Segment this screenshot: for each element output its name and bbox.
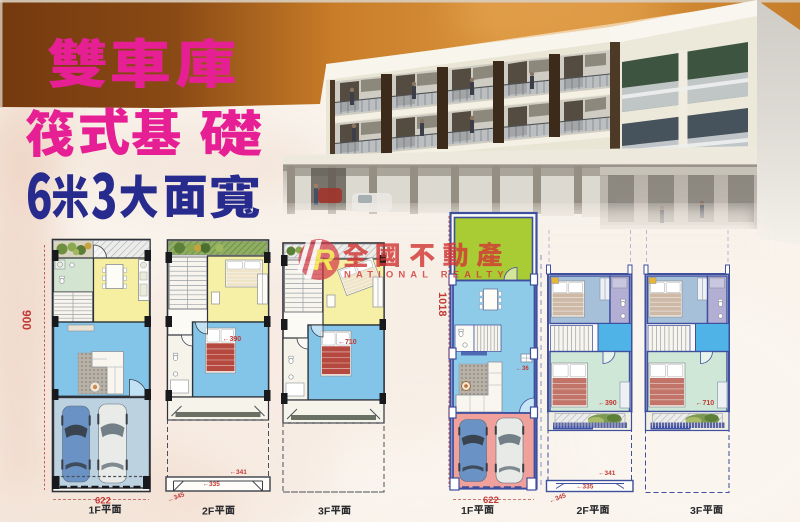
svg-text:←710: ←710 [338,339,357,346]
svg-text:←335: ←335 [576,484,594,491]
svg-text:←390: ←390 [223,336,242,343]
svg-text:900: 900 [20,310,34,330]
svg-text:←341: ←341 [598,470,616,477]
svg-text:←36: ←36 [516,366,529,372]
svg-text:2F: 2F [202,506,215,518]
svg-text:3F: 3F [690,505,703,517]
svg-text:1F: 1F [461,505,474,517]
svg-text:1018: 1018 [436,292,448,316]
svg-text:R: R [313,244,335,277]
svg-text:3F: 3F [318,506,331,518]
svg-text:←710: ←710 [696,400,715,407]
svg-text:1F: 1F [89,505,102,517]
svg-text:NATIONAL REALTY: NATIONAL REALTY [344,270,509,281]
svg-text:2F: 2F [577,505,590,517]
svg-text:622: 622 [483,495,499,506]
svg-text:←335: ←335 [203,481,221,488]
svg-text:←390: ←390 [598,400,617,407]
svg-text:←341: ←341 [230,469,248,476]
